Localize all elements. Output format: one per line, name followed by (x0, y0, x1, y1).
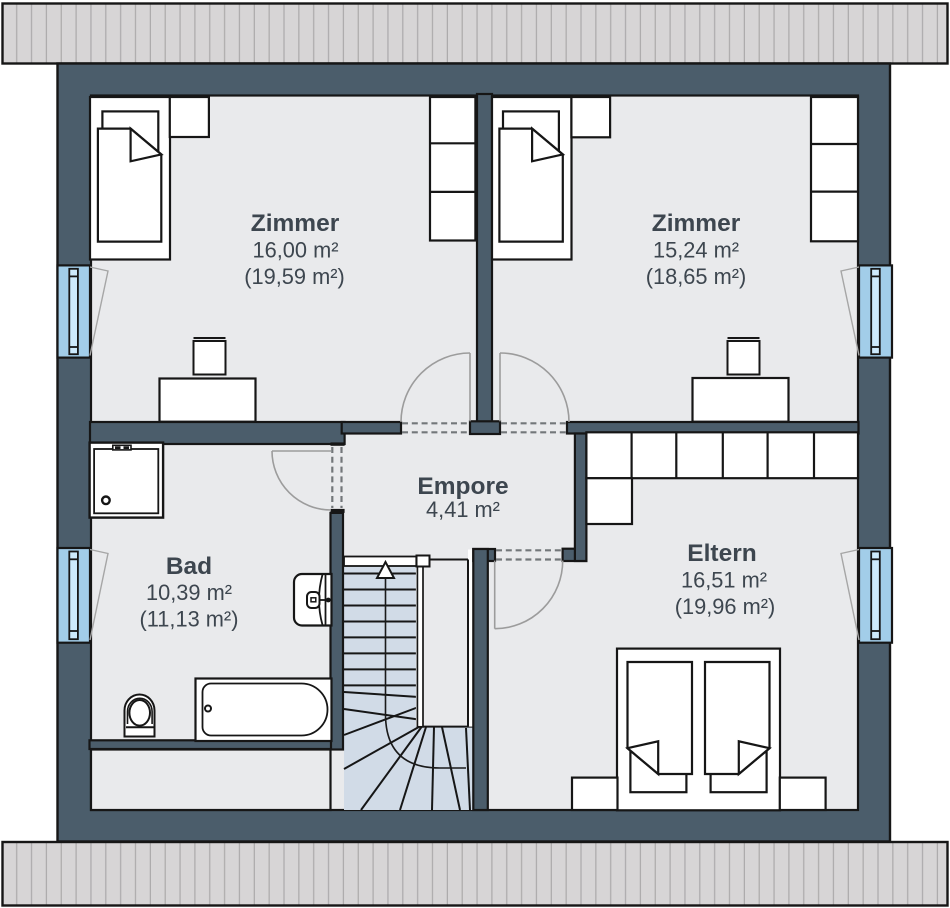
svg-text:(19,59 m²): (19,59 m²) (244, 264, 345, 289)
svg-text:Zimmer: Zimmer (251, 210, 340, 237)
svg-text:Bad: Bad (166, 553, 212, 580)
svg-text:(18,65 m²): (18,65 m²) (646, 264, 747, 289)
svg-text:Zimmer: Zimmer (652, 210, 741, 237)
svg-text:(19,96 m²): (19,96 m²) (675, 594, 776, 619)
svg-text:Eltern: Eltern (687, 540, 756, 567)
svg-text:4,41 m²: 4,41 m² (426, 497, 500, 522)
svg-text:Empore: Empore (417, 473, 508, 500)
svg-text:(11,13 m²): (11,13 m²) (140, 607, 239, 632)
svg-text:16,51 m²: 16,51 m² (681, 568, 767, 593)
svg-text:10,39 m²: 10,39 m² (146, 580, 232, 605)
svg-text:15,24 m²: 15,24 m² (653, 238, 739, 263)
svg-text:16,00 m²: 16,00 m² (252, 238, 338, 263)
